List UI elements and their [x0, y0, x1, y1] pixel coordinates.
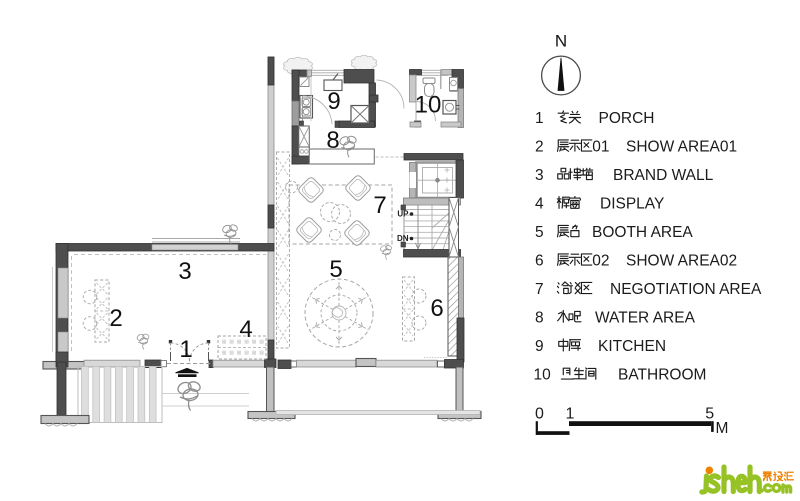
svg-text:9: 9	[327, 88, 340, 115]
svg-text:10: 10	[415, 92, 442, 119]
svg-text:5: 5	[535, 224, 544, 241]
svg-text:0: 0	[535, 406, 544, 423]
svg-text:SHOW AREA01: SHOW AREA01	[626, 139, 737, 156]
svg-text:5: 5	[705, 406, 714, 423]
svg-text:02: 02	[592, 253, 609, 270]
svg-text:UP: UP	[397, 210, 409, 219]
svg-text:SHOW AREA02: SHOW AREA02	[626, 253, 737, 270]
svg-text:1: 1	[535, 110, 544, 127]
svg-text:NEGOTIATION AREA: NEGOTIATION AREA	[610, 281, 762, 298]
svg-text:10: 10	[534, 367, 552, 384]
svg-text:6: 6	[535, 253, 544, 270]
svg-text:BATHROOM: BATHROOM	[618, 367, 706, 384]
svg-text:BOOTH AREA: BOOTH AREA	[592, 224, 693, 241]
svg-text:3: 3	[535, 167, 544, 184]
svg-text:BRAND WALL: BRAND WALL	[613, 167, 714, 184]
svg-text:2: 2	[535, 139, 544, 156]
svg-text:6: 6	[430, 295, 443, 322]
svg-text:N: N	[555, 32, 567, 51]
svg-text:01: 01	[592, 139, 609, 156]
svg-text:8: 8	[535, 310, 544, 327]
svg-text:4: 4	[535, 196, 544, 213]
svg-text:PORCH: PORCH	[599, 110, 655, 127]
svg-text:1: 1	[179, 336, 192, 363]
svg-text:8: 8	[326, 127, 339, 154]
svg-text:2: 2	[109, 305, 122, 332]
svg-text:DISPLAY: DISPLAY	[600, 196, 664, 213]
svg-text:KITCHEN: KITCHEN	[598, 338, 666, 355]
svg-text:M: M	[716, 420, 729, 437]
svg-text:3: 3	[178, 258, 191, 285]
svg-text:4: 4	[239, 316, 252, 343]
svg-text:1: 1	[566, 406, 575, 423]
svg-text:5: 5	[329, 256, 342, 283]
svg-text:DN: DN	[397, 234, 409, 243]
svg-text:7: 7	[373, 192, 386, 219]
svg-text:7: 7	[535, 281, 544, 298]
svg-text:9: 9	[535, 338, 544, 355]
svg-text:WATER AREA: WATER AREA	[595, 310, 696, 327]
